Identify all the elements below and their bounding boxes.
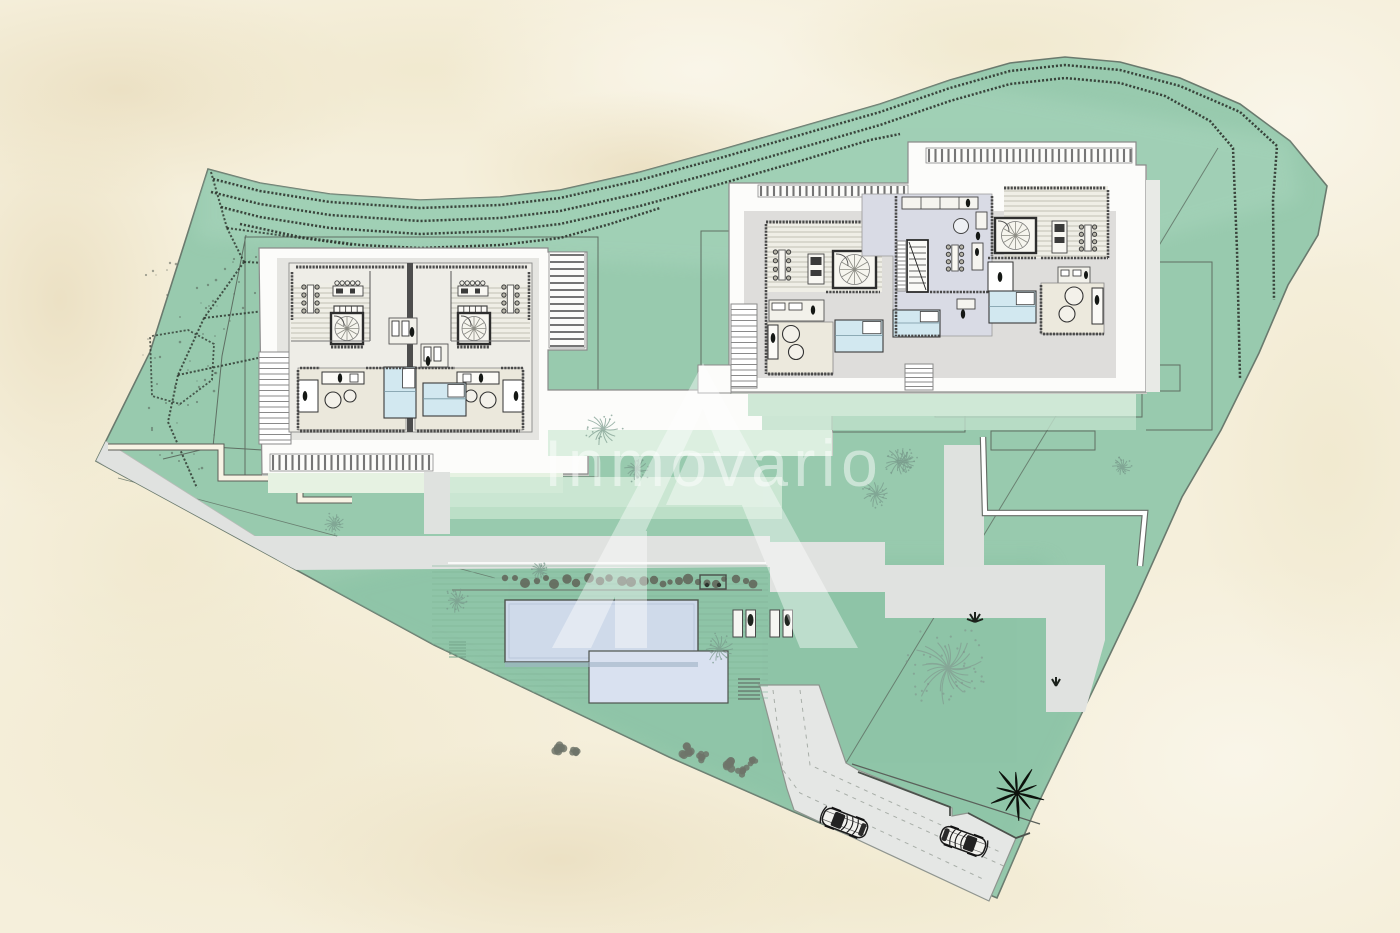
svg-text:Inmovario: Inmovario — [544, 426, 883, 500]
